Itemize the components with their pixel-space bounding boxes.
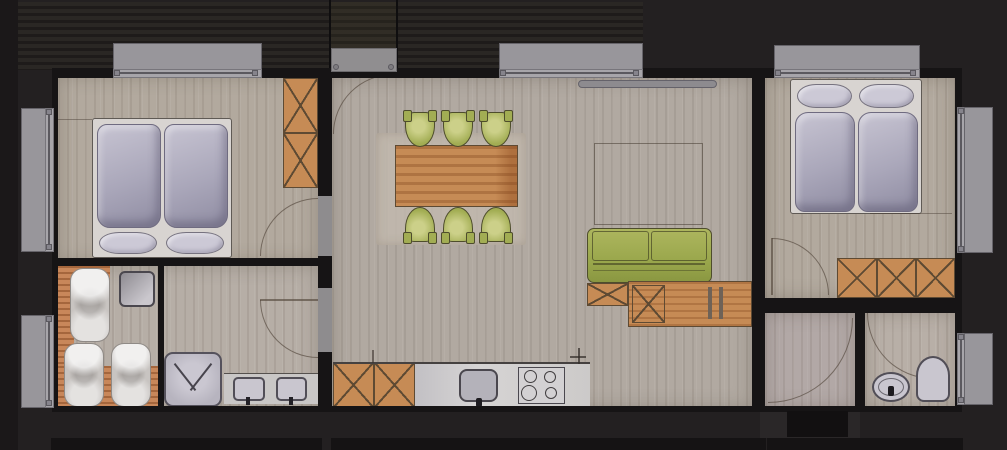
sofa-cushion <box>651 231 707 261</box>
bidet-tap <box>888 386 894 396</box>
window-nub <box>958 246 964 252</box>
window-nub <box>252 70 258 76</box>
window <box>21 108 47 252</box>
bedroom-right-door-leaf <box>771 238 773 295</box>
wardrobe-left-section <box>283 78 318 133</box>
window-nub <box>775 70 781 76</box>
sauna-lounger <box>70 268 110 342</box>
sofa-cushion <box>592 231 649 261</box>
window-glass-line <box>779 72 915 74</box>
rug-outline <box>594 143 703 225</box>
window <box>964 333 993 405</box>
neighbor-unit-band <box>767 438 963 450</box>
stair-void <box>787 411 848 437</box>
dining-chair <box>405 207 435 242</box>
sauna-lounger <box>64 343 104 407</box>
radiator <box>578 80 717 88</box>
window-glass-line <box>118 72 257 74</box>
neighbor-unit-band <box>331 438 766 450</box>
window-glass-line <box>960 112 962 248</box>
bed-left-pillow <box>166 232 224 254</box>
bathroom-door-leaf <box>260 299 318 301</box>
dining-table <box>395 145 518 207</box>
window-nub <box>910 70 916 76</box>
window <box>774 45 920 70</box>
basin-tap <box>289 397 293 405</box>
window-glass-line <box>48 319 50 404</box>
left-edge-shade <box>0 0 18 450</box>
wall-bedroom-right-bottom <box>765 298 962 313</box>
sideboard-low <box>587 283 628 306</box>
window-nub <box>46 244 52 250</box>
wardrobe-left-section <box>283 133 318 188</box>
floorplan-canvas <box>0 0 1007 450</box>
window-nub <box>958 334 964 340</box>
wardrobe-right-section <box>916 258 955 298</box>
window <box>499 43 643 70</box>
pencil-line <box>56 119 92 120</box>
bed-right-duvet <box>858 112 918 212</box>
door-hinge-dot <box>333 64 339 70</box>
kitchen-cabinet <box>374 362 415 408</box>
bed-right-pillow <box>859 84 914 108</box>
toilet <box>916 356 950 402</box>
window <box>964 107 993 253</box>
counter-corner-mark <box>578 348 580 364</box>
window-nub <box>500 70 506 76</box>
wardrobe-right-section <box>837 258 877 298</box>
wall-living-right <box>752 68 765 412</box>
window <box>21 315 47 408</box>
sideboard-handle <box>719 287 723 319</box>
wall-bathroom-divider <box>158 266 164 408</box>
cooktop-burner <box>521 385 537 401</box>
window-glass-line <box>504 72 638 74</box>
wall-bedroom-bathroom <box>52 258 332 266</box>
shower-tray <box>164 352 222 407</box>
window-nub <box>958 397 964 403</box>
window-nub <box>46 400 52 406</box>
window <box>113 43 262 70</box>
window-nub <box>46 109 52 115</box>
kitchen-cabinet <box>333 362 374 408</box>
window-glass-line <box>960 337 962 401</box>
bed-left-duvet <box>97 124 161 228</box>
sauna-heater <box>119 271 155 307</box>
bed-right-pillow <box>797 84 852 108</box>
dining-chair <box>481 207 511 242</box>
sideboard-handle <box>708 287 712 319</box>
sofa-seat-line <box>593 270 705 271</box>
cooktop-burner <box>544 371 556 383</box>
cooktop-burner <box>524 370 537 383</box>
window-nub <box>633 70 639 76</box>
bed-left-duvet <box>164 124 228 228</box>
bed-right-duvet <box>795 112 855 212</box>
wardrobe-right-section <box>877 258 916 298</box>
wall-vestibule-wc <box>855 313 865 408</box>
window-nub <box>958 108 964 114</box>
window-nub <box>114 70 120 76</box>
bedroom-left-door-opening <box>318 196 332 256</box>
sideboard-door <box>632 285 665 323</box>
window-glass-line <box>48 113 50 247</box>
counter-tick <box>372 350 374 363</box>
window-nub <box>46 316 52 322</box>
balcony-door-recess <box>331 48 397 72</box>
bathroom-door-opening <box>318 288 332 352</box>
pencil-line <box>870 213 952 214</box>
door-hinge-dot <box>388 64 394 70</box>
bed-left-pillow <box>99 232 157 254</box>
dining-chair <box>443 207 473 242</box>
neighbor-unit-band <box>51 438 322 450</box>
sauna-lounger <box>111 343 151 407</box>
cooktop-burner <box>545 387 557 399</box>
sofa-seat-line <box>593 263 705 265</box>
basin-tap <box>246 397 250 405</box>
